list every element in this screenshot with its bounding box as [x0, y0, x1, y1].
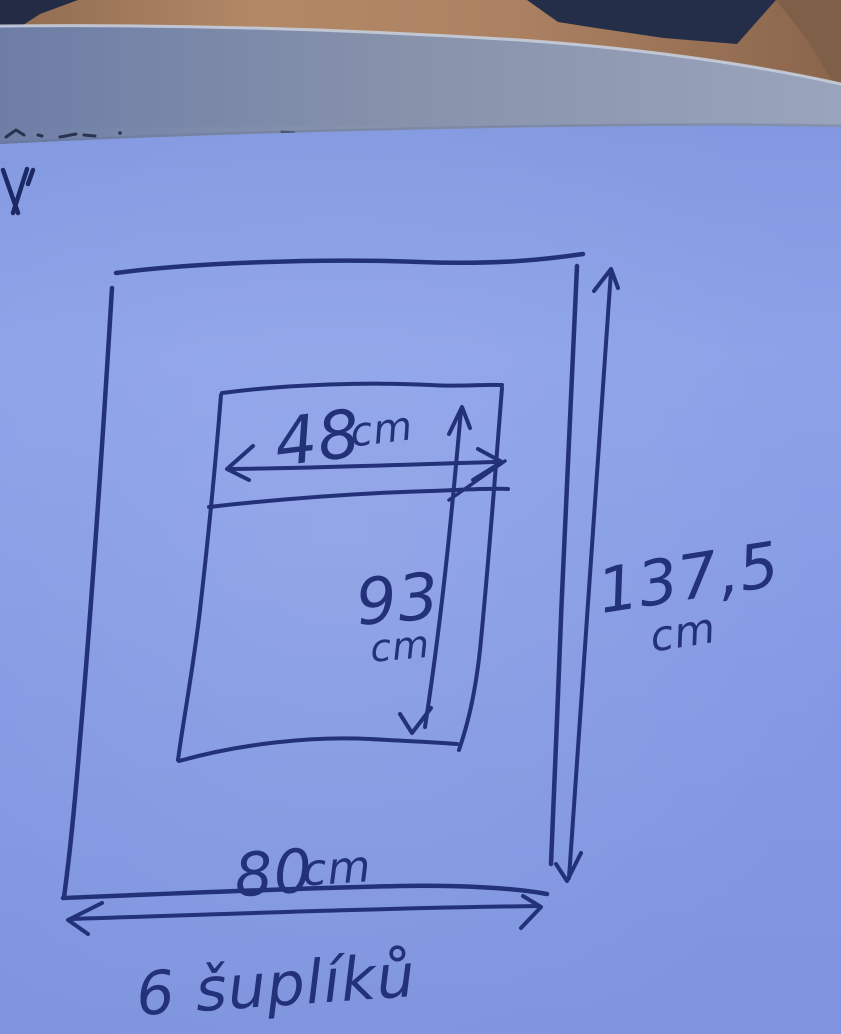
inner-width-unit: cm	[348, 403, 416, 456]
outer-width-unit: cm	[301, 841, 373, 897]
inner-height-unit: cm	[368, 622, 432, 671]
photo-of-hand-drawn-sketch: 48 cm 93 cm 137,5 cm 80 cm 6 šuplíků	[0, 0, 841, 1034]
sketch-svg: 48 cm 93 cm 137,5 cm 80 cm 6 šuplíků	[0, 0, 841, 1034]
outer-height-unit: cm	[646, 603, 719, 662]
